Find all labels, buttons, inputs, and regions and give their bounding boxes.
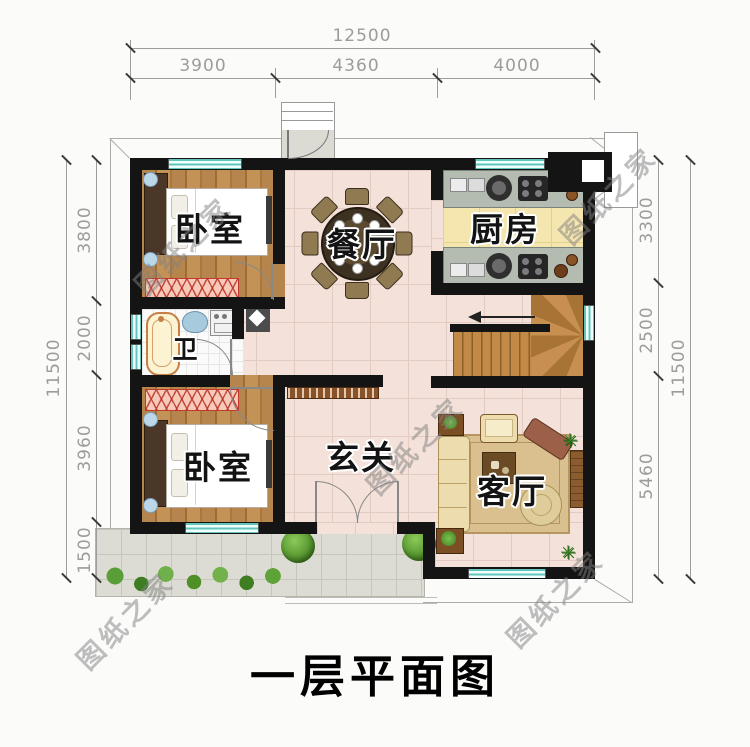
door-leaf	[230, 339, 232, 375]
dim-line	[66, 160, 67, 578]
window	[131, 314, 141, 340]
dining-chair	[302, 231, 319, 255]
dim-line	[130, 78, 595, 79]
bathroom-doorway	[232, 339, 244, 375]
dim-witness	[275, 68, 276, 98]
eave-miter-bottomright	[594, 579, 632, 603]
porch-steps	[281, 102, 335, 132]
floor-plan-canvas: ✳ ✳ 卧室 餐厅 厨房 卫 卧室 玄关 客厅 图纸之家 图	[0, 0, 750, 747]
bush	[281, 529, 315, 563]
dim-label: 5460	[637, 452, 657, 499]
front-door-leaf-left	[315, 481, 317, 522]
window	[168, 159, 242, 169]
dim-line	[96, 160, 97, 578]
tv-cabinet	[570, 450, 584, 508]
door-leaf	[271, 262, 273, 299]
tv-console	[266, 196, 272, 244]
dining-chair	[345, 282, 369, 299]
stair-winder	[531, 295, 583, 376]
room-label-bathroom: 卫	[172, 330, 199, 366]
wall-lamp	[143, 498, 158, 513]
bedroom-top-doorway	[273, 264, 285, 297]
window	[468, 569, 546, 578]
dim-label-total-top: 12500	[332, 26, 391, 46]
dim-line	[130, 48, 595, 49]
stair-handrail	[450, 324, 550, 332]
dim-witness	[437, 68, 438, 98]
bed-bench	[145, 389, 239, 411]
stair-direction-arrow	[468, 311, 481, 323]
plan-title: 一层平面图	[205, 640, 545, 705]
dim-label: 2500	[637, 306, 657, 353]
wall	[273, 375, 383, 387]
dim-label: 3300	[637, 196, 657, 243]
potted-plant	[441, 531, 456, 546]
terrace-step-line-2	[285, 603, 437, 604]
wall	[232, 297, 244, 339]
armchair	[480, 414, 518, 443]
room-label-kitchen: 厨房	[470, 203, 540, 251]
dining-chair	[396, 231, 413, 255]
room-label-bedroom-bottom: 卧室	[183, 441, 253, 489]
wall	[273, 170, 285, 264]
window	[131, 344, 141, 370]
wall-lamp	[143, 172, 158, 187]
window	[475, 159, 545, 169]
wall	[431, 158, 443, 200]
plant-icon: ✳	[562, 430, 578, 452]
kitchen-counter-bottom	[443, 247, 585, 285]
wall	[431, 376, 583, 388]
window	[584, 305, 594, 341]
door-leaf	[230, 387, 273, 389]
wall-lamp	[143, 412, 158, 427]
eave-miter-topleft	[109, 138, 130, 159]
dim-label: 3800	[75, 206, 95, 253]
dim-label-total-left: 11500	[44, 338, 64, 397]
dining-chair	[345, 188, 369, 205]
front-doorway	[317, 522, 397, 534]
dim-label-total-right: 11500	[669, 338, 689, 397]
porch-step-line	[281, 111, 333, 112]
dim-label: 3960	[75, 424, 95, 471]
dim-line	[658, 160, 659, 579]
kitchen-doorway	[431, 200, 443, 251]
room-label-dining: 餐厅	[327, 218, 397, 266]
room-label-living: 客厅	[477, 465, 547, 513]
eave-line-left	[110, 138, 111, 530]
tv-console	[266, 440, 272, 488]
water-heater	[246, 306, 270, 332]
window	[185, 523, 259, 533]
dim-label: 2000	[75, 314, 95, 361]
porch-door-leaf	[287, 130, 289, 158]
shoe-cabinet	[287, 387, 379, 399]
dim-label: 4000	[493, 56, 540, 76]
eave-line-top	[110, 138, 633, 139]
stair-direction-line	[480, 316, 535, 318]
dim-label: 3900	[179, 56, 226, 76]
terrace-step-line-1	[285, 597, 437, 598]
wall	[431, 283, 595, 295]
dim-line	[690, 160, 691, 579]
sofa	[438, 436, 470, 532]
wall	[273, 522, 317, 534]
dim-label: 4360	[332, 56, 379, 76]
porch-step-line	[281, 120, 333, 121]
wardrobe	[144, 420, 168, 507]
bedroom-bottom-doorway	[230, 375, 273, 387]
dim-label: 1500	[75, 526, 95, 573]
wall	[130, 375, 230, 387]
wall	[273, 375, 285, 534]
